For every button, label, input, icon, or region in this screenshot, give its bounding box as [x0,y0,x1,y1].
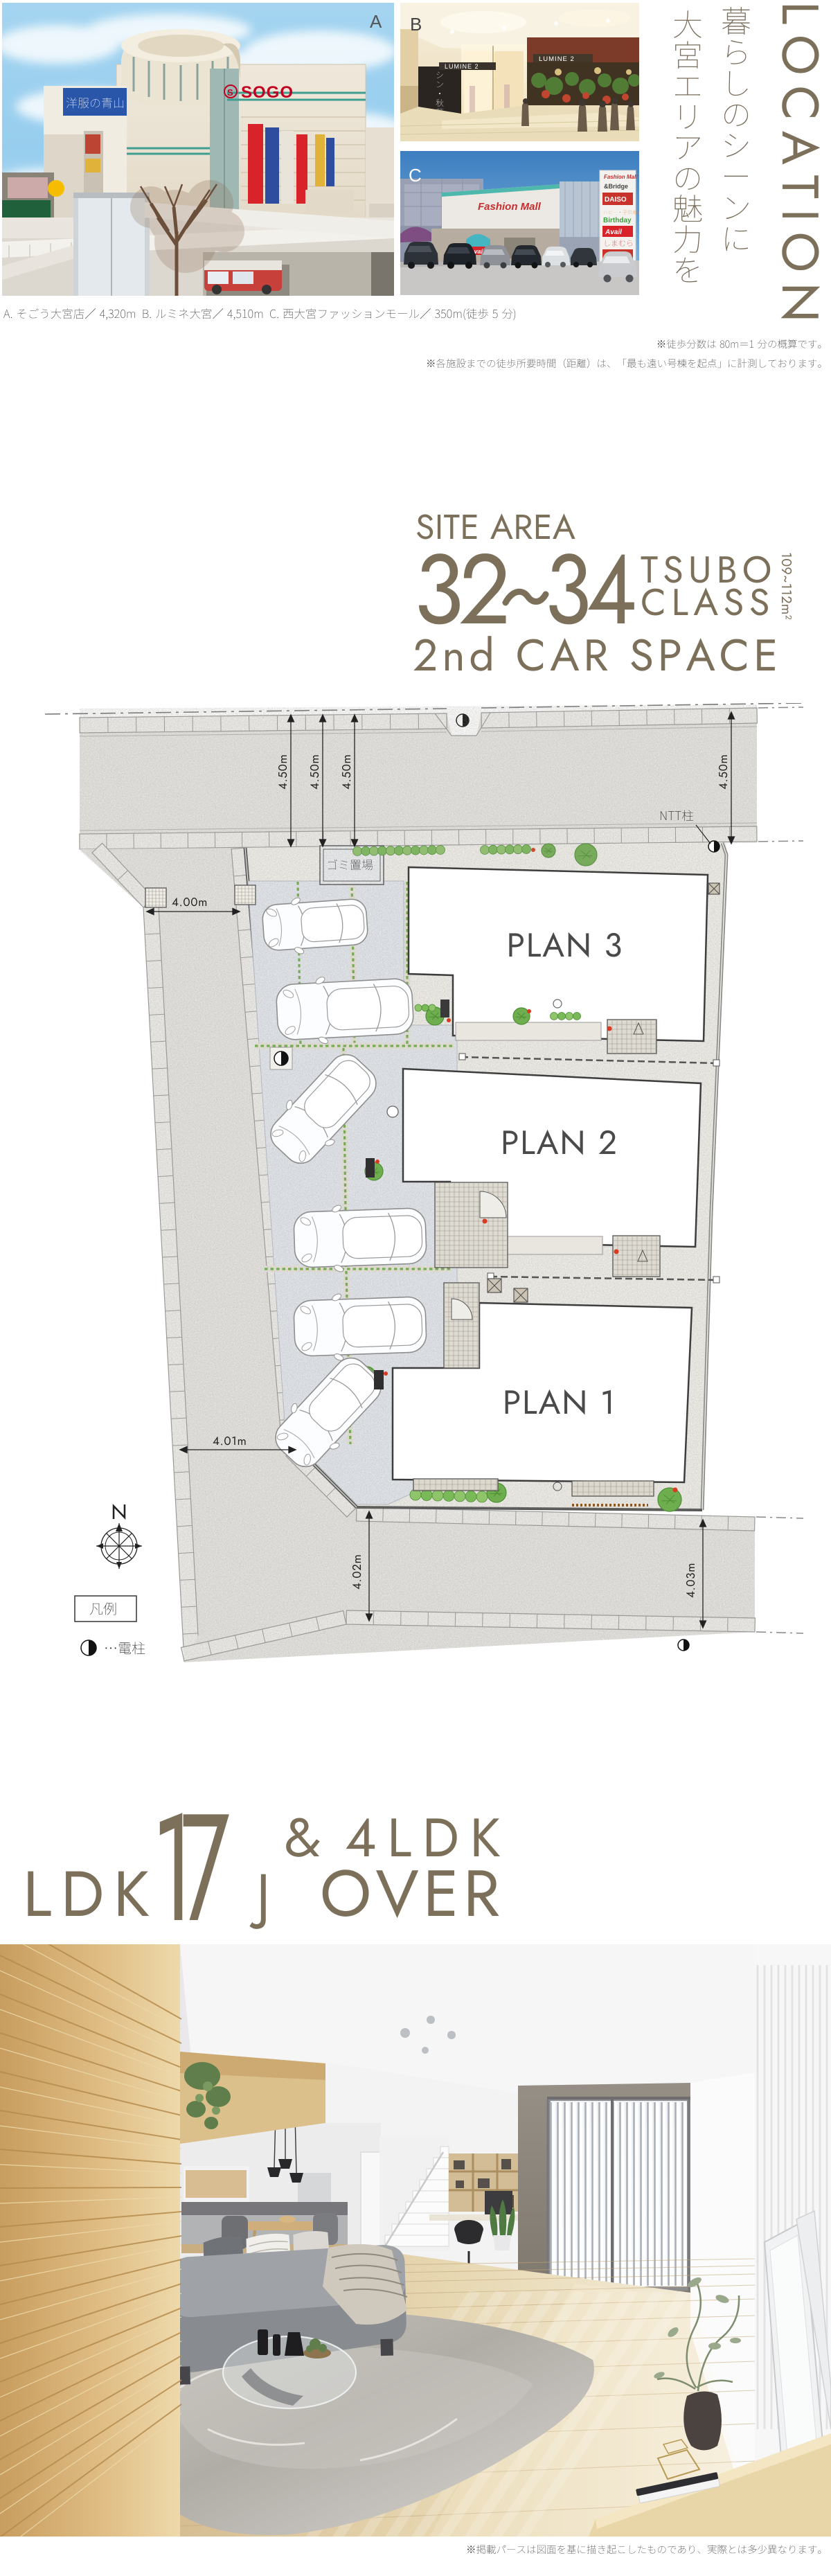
svg-text:C: C [409,165,422,186]
svg-text:A: A [370,11,382,32]
svg-text:LUMINE 2: LUMINE 2 [445,63,479,70]
svg-text:DAISO: DAISO [605,196,627,204]
svg-text:LUMINE 2: LUMINE 2 [539,55,575,63]
svg-text:Birthday: Birthday [603,217,632,224]
svg-text:Fashion Mall: Fashion Mall [604,174,638,180]
svg-text:S: S [227,87,233,98]
svg-text:&Bridge: &Bridge [604,183,628,190]
svg-text:Avail: Avail [605,229,622,236]
svg-text:B: B [410,14,422,35]
svg-text:Fashion Mall: Fashion Mall [478,201,542,213]
svg-text:SOGO: SOGO [241,83,294,102]
